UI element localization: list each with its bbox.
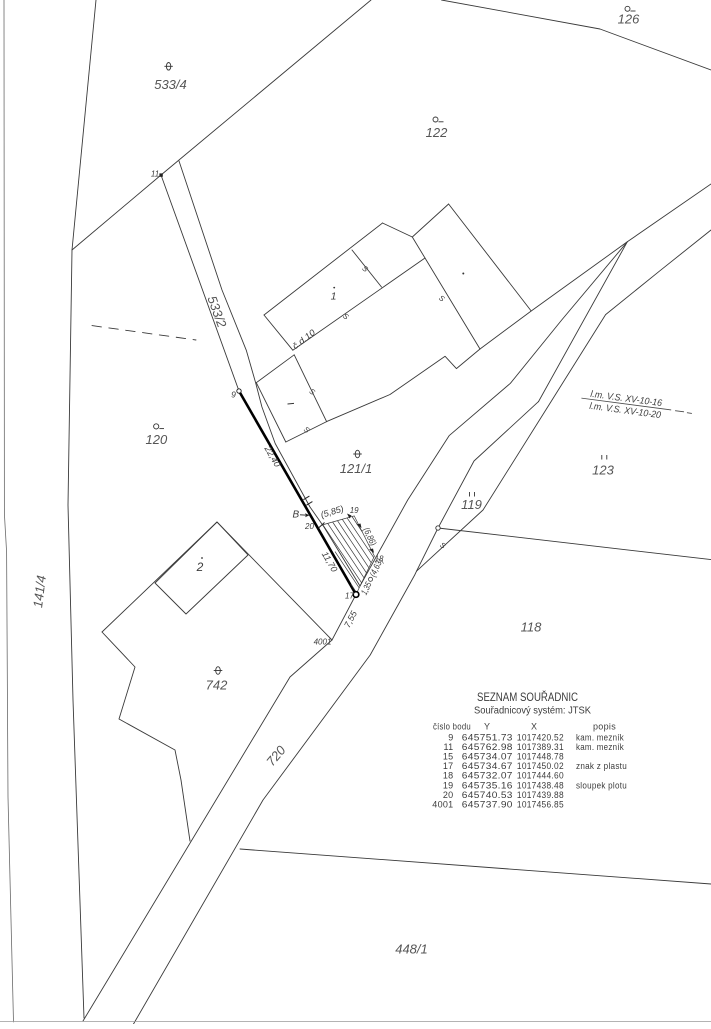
svg-text:645762.98: 645762.98 xyxy=(462,742,513,752)
svg-text:11: 11 xyxy=(151,170,159,179)
svg-text:Souřadnicový systém: JTSK: Souřadnicový systém: JTSK xyxy=(474,706,591,717)
svg-text:1017438.48: 1017438.48 xyxy=(517,781,564,791)
svg-text:Y: Y xyxy=(484,722,490,732)
svg-text:645751.73: 645751.73 xyxy=(462,733,513,743)
svg-text:18: 18 xyxy=(443,771,454,781)
svg-text:číslo bodu: číslo bodu xyxy=(433,722,471,732)
svg-text:20: 20 xyxy=(304,522,314,531)
svg-text:4001: 4001 xyxy=(432,800,453,810)
svg-text:742: 742 xyxy=(206,678,228,693)
svg-text:SEZNAM SOUŘADNIC: SEZNAM SOUŘADNIC xyxy=(477,689,578,704)
svg-text:121/1: 121/1 xyxy=(340,461,373,476)
svg-text:448/1: 448/1 xyxy=(395,942,428,957)
svg-text:11: 11 xyxy=(444,742,454,752)
svg-text:9: 9 xyxy=(448,733,453,743)
svg-text:645732.07: 645732.07 xyxy=(462,771,513,781)
svg-text:B: B xyxy=(293,510,300,521)
svg-text:1: 1 xyxy=(331,291,337,303)
svg-text:1017450.02: 1017450.02 xyxy=(517,761,564,771)
svg-text:15: 15 xyxy=(443,752,454,762)
svg-text:kam. mezník: kam. mezník xyxy=(576,742,624,752)
svg-text:645737.90: 645737.90 xyxy=(462,800,513,810)
svg-text:533/4: 533/4 xyxy=(154,77,187,92)
svg-text:2: 2 xyxy=(196,560,204,574)
svg-text:sloupek plotu: sloupek plotu xyxy=(576,781,627,791)
svg-text:19: 19 xyxy=(443,781,454,791)
svg-text:126: 126 xyxy=(618,12,640,27)
svg-text:znak z plastu: znak z plastu xyxy=(576,761,627,771)
svg-text:122: 122 xyxy=(426,125,448,140)
svg-text:X: X xyxy=(531,722,537,732)
svg-text:119: 119 xyxy=(461,497,482,512)
svg-text:120: 120 xyxy=(146,432,168,447)
svg-text:popis: popis xyxy=(593,722,616,732)
svg-text:1017420.52: 1017420.52 xyxy=(517,733,564,743)
svg-text:1017444.60: 1017444.60 xyxy=(517,771,564,781)
svg-text:645740.53: 645740.53 xyxy=(462,790,513,800)
svg-text:1017389.31: 1017389.31 xyxy=(517,742,564,752)
svg-text:645735.16: 645735.16 xyxy=(462,781,513,791)
svg-text:17: 17 xyxy=(345,592,354,601)
svg-text:9: 9 xyxy=(231,390,236,400)
svg-text:4001: 4001 xyxy=(314,638,332,647)
svg-text:17: 17 xyxy=(443,761,454,771)
svg-text:1017456.85: 1017456.85 xyxy=(517,800,564,810)
svg-text:1017448.78: 1017448.78 xyxy=(517,752,564,762)
svg-text:123: 123 xyxy=(592,463,614,478)
svg-text:19: 19 xyxy=(350,506,359,515)
svg-text:118: 118 xyxy=(521,620,542,635)
svg-text:645734.67: 645734.67 xyxy=(462,761,513,771)
svg-text:1017439.88: 1017439.88 xyxy=(517,790,564,800)
svg-text:645734.07: 645734.07 xyxy=(462,752,513,762)
svg-text:kam. mezník: kam. mezník xyxy=(576,733,624,743)
svg-text:20: 20 xyxy=(443,790,454,800)
